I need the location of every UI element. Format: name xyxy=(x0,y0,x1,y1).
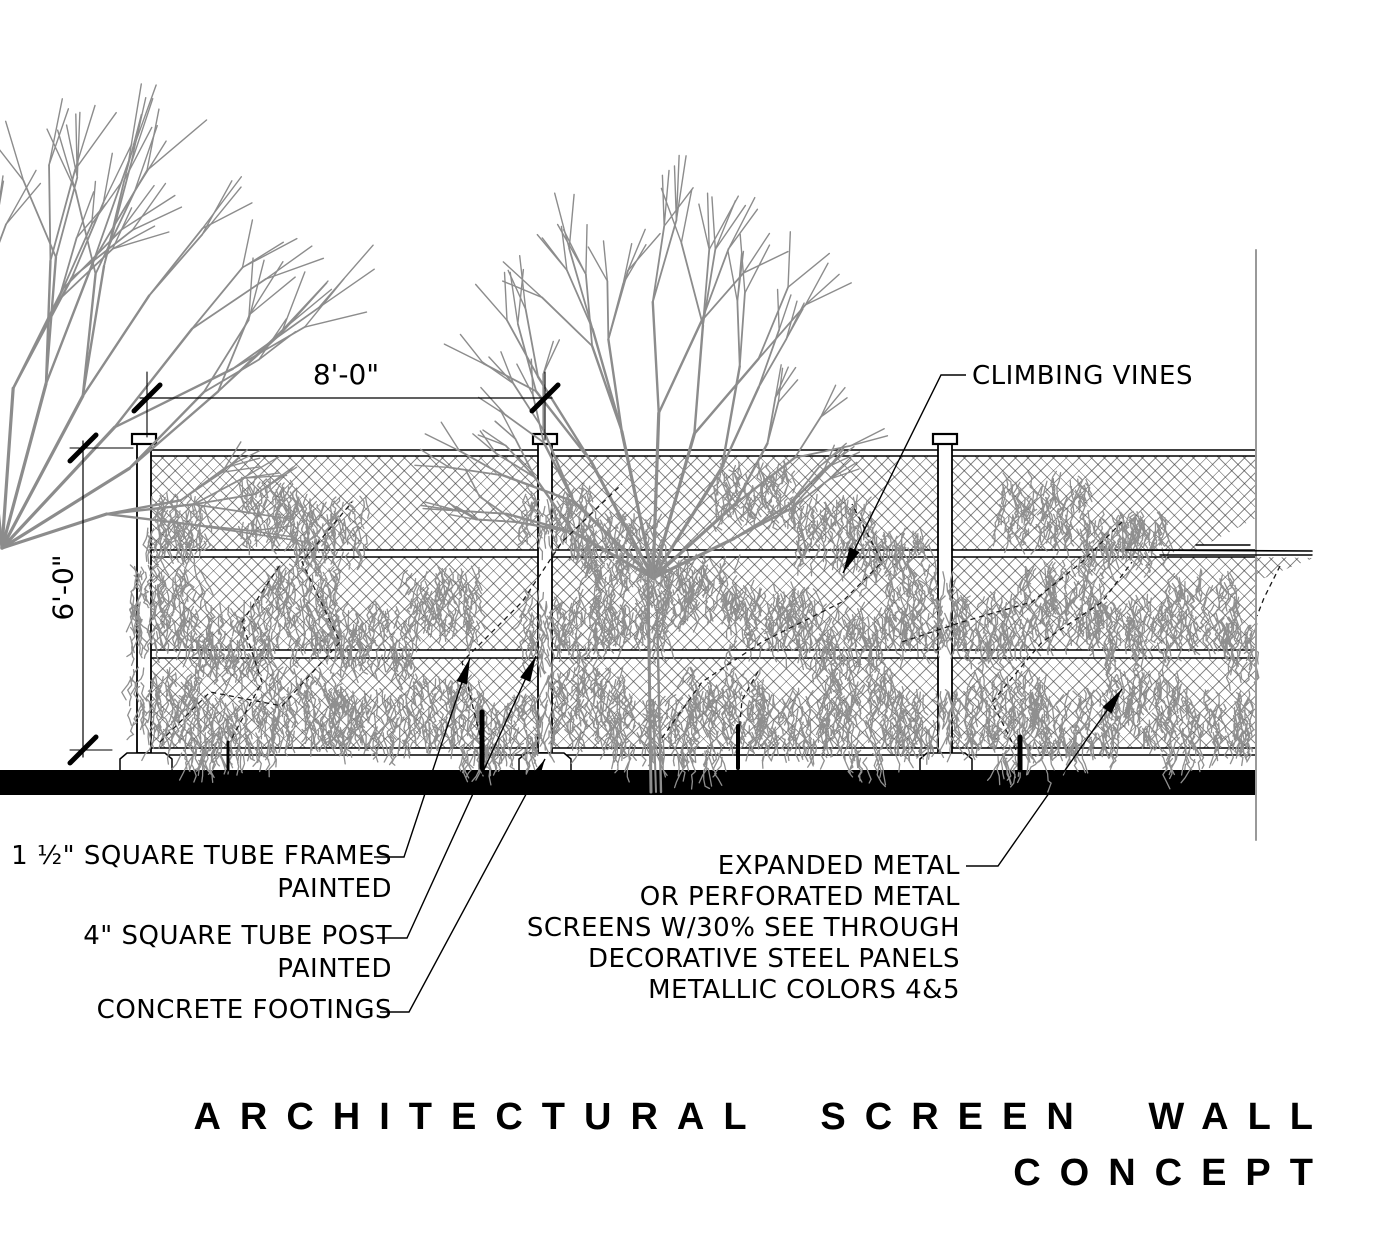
drawing-canvas: 8'-0" 6'-0" CLIMBING VINES 1 ½" SQUARE T… xyxy=(0,0,1395,1234)
dimension-fence-height: 6'-0" xyxy=(47,542,80,634)
ground-line xyxy=(0,770,1256,795)
elevation-scene xyxy=(0,0,1395,1234)
callout-screen-line3: SCREENS W/30% SEE THROUGH xyxy=(527,913,960,943)
sheet-title-line2: CONCEPT xyxy=(1013,1152,1332,1195)
climbing-vines-foliage xyxy=(122,460,1280,792)
callout-concrete-footings: CONCRETE FOOTINGS xyxy=(97,995,392,1025)
panel-break-symbol xyxy=(1192,518,1256,552)
callout-screen-line4: DECORATIVE STEEL PANELS xyxy=(588,944,960,974)
callout-tube-frames-line1: 1 ½" SQUARE TUBE FRAMES xyxy=(11,841,392,871)
callout-climbing-vines: CLIMBING VINES xyxy=(972,361,1193,391)
callout-screen-line2: OR PERFORATED METAL xyxy=(640,882,960,912)
callout-tube-post-line1: 4" SQUARE TUBE POST xyxy=(83,921,392,951)
callout-screen-line5: METALLIC COLORS 4&5 xyxy=(648,975,960,1005)
callout-tube-post-line2: PAINTED xyxy=(277,954,392,984)
sheet-title-line1: ARCHITECTURAL SCREEN WALL xyxy=(193,1096,1332,1139)
callout-tube-frames-line2: PAINTED xyxy=(277,874,392,904)
dimension-panel-width: 8'-0" xyxy=(147,358,545,391)
callout-screen-line1: EXPANDED METAL xyxy=(718,851,960,881)
